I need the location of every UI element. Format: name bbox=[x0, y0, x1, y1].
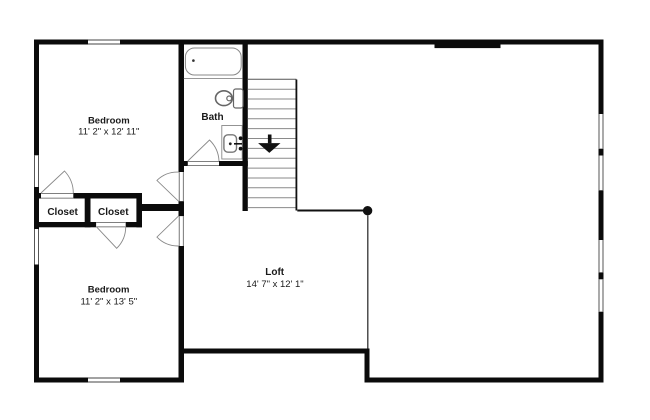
svg-text:Bedroom: Bedroom bbox=[88, 284, 130, 295]
svg-text:Bath: Bath bbox=[201, 112, 223, 123]
svg-text:Bedroom: Bedroom bbox=[88, 116, 130, 127]
svg-text:Loft: Loft bbox=[265, 267, 285, 278]
svg-text:Closet: Closet bbox=[47, 207, 78, 218]
svg-text:11' 2" x 12' 11": 11' 2" x 12' 11" bbox=[78, 127, 139, 138]
svg-text:11' 2" x 13' 5": 11' 2" x 13' 5" bbox=[80, 297, 137, 308]
svg-text:Closet: Closet bbox=[98, 207, 129, 218]
svg-text:14' 7" x 12' 1": 14' 7" x 12' 1" bbox=[246, 279, 303, 290]
